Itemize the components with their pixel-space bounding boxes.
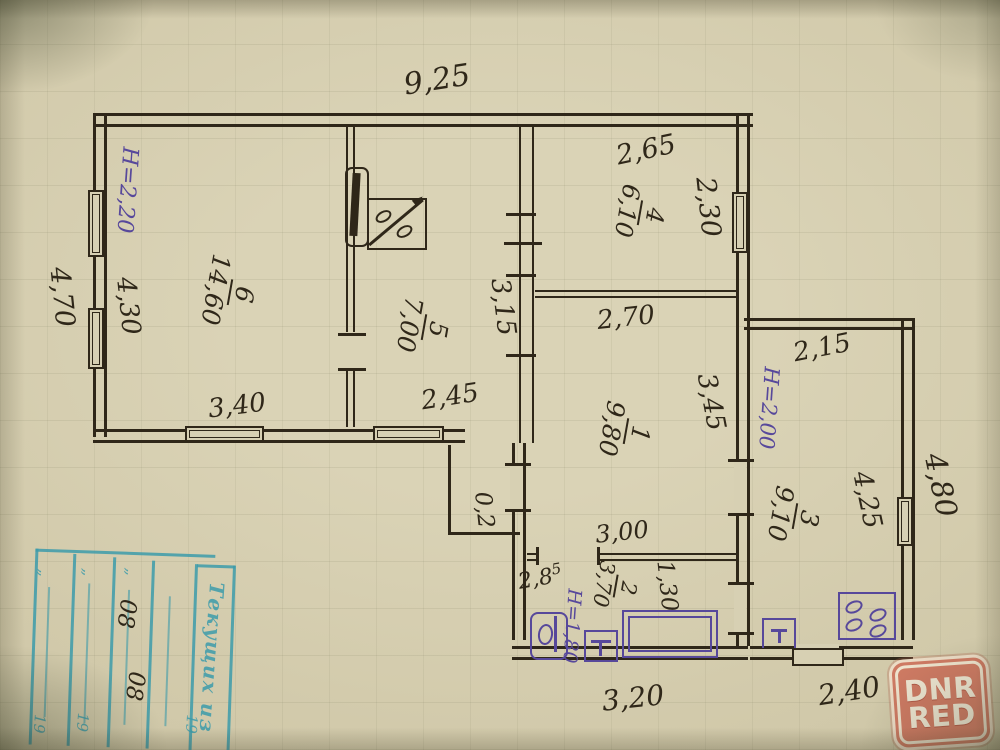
- stamp-year: 19: [30, 714, 49, 734]
- wall-annex-right: [901, 318, 915, 640]
- burner: [843, 616, 864, 634]
- room5-label: 5 7,00: [392, 295, 457, 360]
- stamp-line: [197, 564, 235, 568]
- partition-room6-room5-lower: [346, 371, 355, 427]
- porch-line-bottom: [448, 532, 520, 535]
- sink-symbol: [762, 618, 796, 648]
- room3-area: 9,10: [763, 484, 799, 544]
- revision-stamp: Текущих из 19 19 19 „ „ „ 08 08: [23, 546, 242, 750]
- window-symbol: [88, 190, 104, 257]
- dim-corridor: 3,15: [485, 276, 522, 337]
- window-symbol: [897, 497, 913, 546]
- room6-area: 14,60: [196, 252, 235, 327]
- room1-label: 1 9,80: [594, 399, 659, 464]
- doorstep-symbol: [792, 648, 844, 666]
- stamp-entry-handwritten: 08: [111, 597, 141, 630]
- wall-annex-top: [744, 318, 915, 330]
- room3-number: 3: [792, 503, 825, 534]
- sink-tee-bar: [591, 640, 611, 643]
- stamp-entry-handwritten: 08: [120, 670, 150, 703]
- dim-room4-height: 2,30: [689, 175, 726, 238]
- partition-room4-room1: [535, 290, 736, 298]
- gas-stove-symbol: [838, 592, 896, 640]
- burner: [843, 598, 864, 616]
- stamp-year: 19: [182, 714, 201, 734]
- room2-label: 2 3,70: [589, 559, 644, 613]
- scanned-floor-plan-photo: 9,25 2,65 2,30 H=2,20 4,70 4,30 3,40 2,4…: [0, 0, 1000, 750]
- boiler-line: [554, 616, 557, 652]
- bathtub-inner: [628, 616, 712, 652]
- furnace-symbol: [345, 167, 369, 247]
- window-symbol: [88, 308, 104, 369]
- partition-room5-hall: [519, 126, 534, 443]
- room1-number: 1: [623, 418, 656, 449]
- dim-room1-height: 3,45: [691, 371, 731, 434]
- room4-label: 4 6,10: [609, 182, 671, 244]
- stamp-year: 19: [73, 712, 92, 732]
- burner: [867, 606, 888, 624]
- dim-room5-width: 2,45: [419, 378, 481, 417]
- door-tick: [728, 459, 754, 462]
- dim-annex-bottom-width: 2,40: [816, 670, 883, 712]
- stamp-quote: „: [35, 568, 55, 578]
- stamp-line: [107, 557, 116, 747]
- room6-number: 6: [227, 279, 260, 310]
- door-tick: [505, 463, 531, 466]
- stamp-line: [146, 561, 155, 749]
- sink-tee-stem: [778, 629, 781, 643]
- room4-area: 6,10: [609, 182, 644, 239]
- porch-line-left: [448, 445, 451, 535]
- stamp-rule: [83, 583, 89, 723]
- watermark-badge: DNR RED: [888, 654, 994, 750]
- dim-ceiling-height-annex: H=2,00: [754, 366, 784, 450]
- room5-number: 5: [421, 314, 454, 345]
- window-symbol: [373, 426, 444, 442]
- room2-number: 2: [613, 574, 641, 601]
- boiler-oval: [537, 623, 555, 646]
- window-symbol: [185, 426, 264, 442]
- door-tick: [728, 582, 754, 585]
- dim-bath-width-main: 2,8: [516, 564, 555, 595]
- furnace-hatch: [349, 173, 360, 236]
- door-opening-porch: [510, 466, 522, 510]
- door-tick: [728, 632, 754, 635]
- watermark-text: DNR RED: [894, 660, 987, 745]
- dim-hall-width: 3,00: [594, 515, 650, 548]
- room2-area: 3,70: [589, 559, 619, 609]
- stamp-quote: „: [79, 568, 99, 578]
- door-opening-room2-annex: [734, 585, 746, 633]
- dim-bath-width-sup: 5: [550, 559, 563, 578]
- dim-bottom-width: 3,20: [600, 678, 665, 717]
- dim-annex-outer: 4,80: [918, 450, 965, 520]
- door-tick: [338, 368, 366, 371]
- door-tick: [504, 242, 542, 245]
- wall-top: [93, 113, 753, 127]
- room1-area: 9,80: [594, 399, 630, 459]
- window-symbol: [732, 192, 748, 253]
- stamp-title: Текущих из: [195, 581, 230, 734]
- stamp-quote: „: [122, 567, 142, 577]
- room5-area: 7,00: [392, 295, 428, 355]
- dim-total-width: 9,25: [401, 57, 472, 102]
- stamp-rule: [164, 596, 170, 726]
- door-tick: [728, 513, 754, 516]
- stamp-rule: [44, 587, 50, 717]
- dim-ceiling-height-main: H=2,20: [112, 146, 143, 234]
- door-opening-room1-annex: [734, 462, 746, 514]
- watermark-line2: RED: [907, 700, 976, 731]
- bathtub-symbol: [622, 610, 718, 658]
- door-tick: [506, 213, 536, 216]
- door-tick: [338, 333, 366, 336]
- dim-room1-width: 2,70: [596, 300, 657, 336]
- dim-annex-width: 2,15: [791, 328, 854, 368]
- room6-label: 6 14,60: [196, 252, 264, 332]
- door-tick: [506, 354, 536, 357]
- dim-room6-width: 3,40: [206, 388, 267, 425]
- dim-room4-width: 2,65: [613, 129, 678, 172]
- burner: [867, 622, 888, 640]
- wall-left: [93, 113, 107, 437]
- dim-step: 0,2: [469, 490, 499, 529]
- door-tick: [505, 509, 531, 512]
- room3-label: 3 9,10: [763, 484, 828, 549]
- dim-left-outer: 4,70: [43, 265, 80, 328]
- dim-room6-height: 4,30: [110, 276, 146, 337]
- dim-bath-width: 2,85: [516, 559, 565, 595]
- dim-bath-length: 1,30: [651, 559, 682, 613]
- dim-annex-height: 4,25: [846, 469, 887, 532]
- sink-symbol: [584, 630, 618, 662]
